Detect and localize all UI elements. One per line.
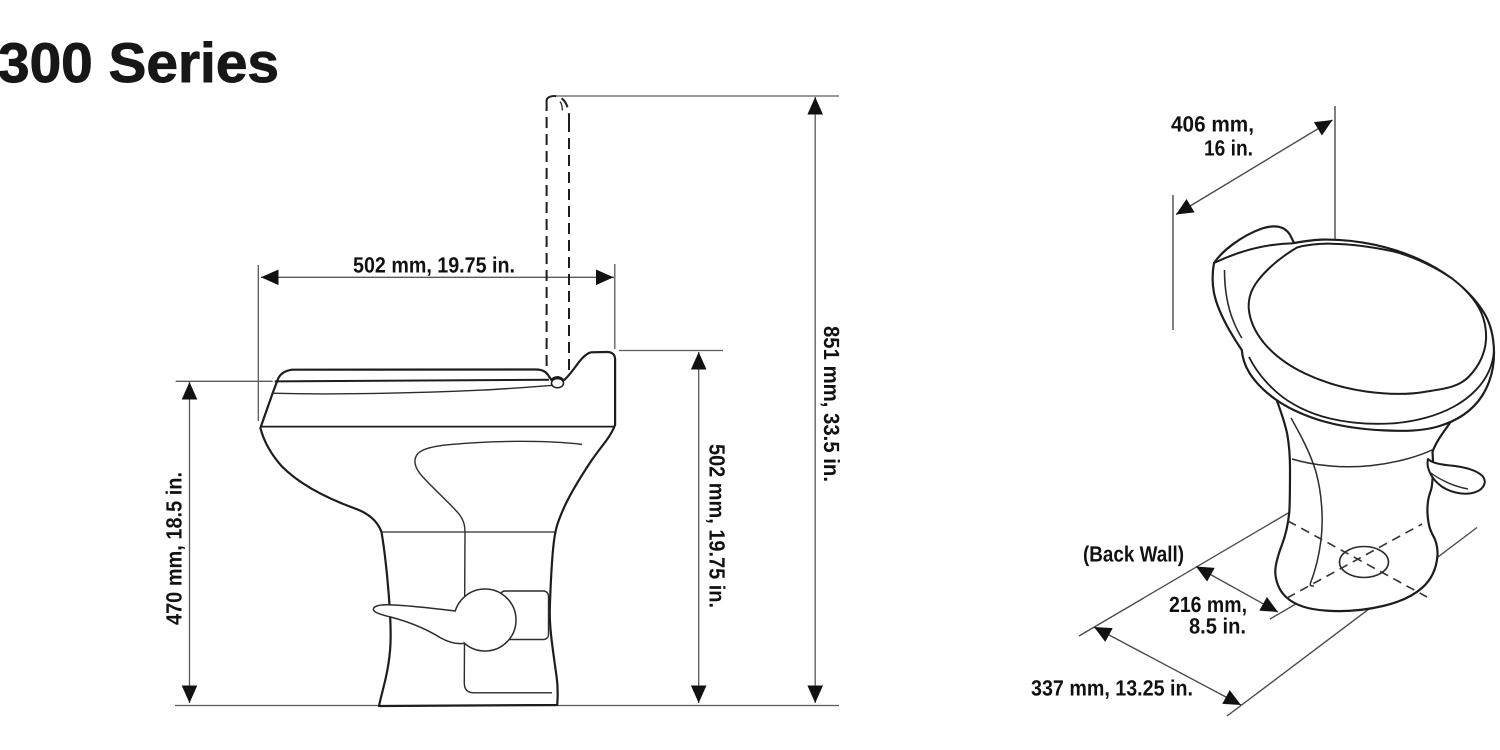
svg-text:(Back Wall): (Back Wall) xyxy=(1083,542,1184,567)
svg-text:337 mm, 13.25 in.: 337 mm, 13.25 in. xyxy=(1031,676,1193,701)
svg-text:8.5 in.: 8.5 in. xyxy=(1189,614,1246,639)
svg-text:300 Series: 300 Series xyxy=(0,31,279,94)
svg-text:406 mm,: 406 mm, xyxy=(1171,112,1254,137)
svg-text:16 in.: 16 in. xyxy=(1204,136,1253,161)
svg-text:851 mm, 33.5 in.: 851 mm, 33.5 in. xyxy=(819,326,844,482)
svg-text:502 mm, 19.75 in.: 502 mm, 19.75 in. xyxy=(705,444,730,608)
svg-text:502 mm, 19.75 in.: 502 mm, 19.75 in. xyxy=(353,253,515,278)
svg-text:470 mm, 18.5 in.: 470 mm, 18.5 in. xyxy=(162,472,187,625)
